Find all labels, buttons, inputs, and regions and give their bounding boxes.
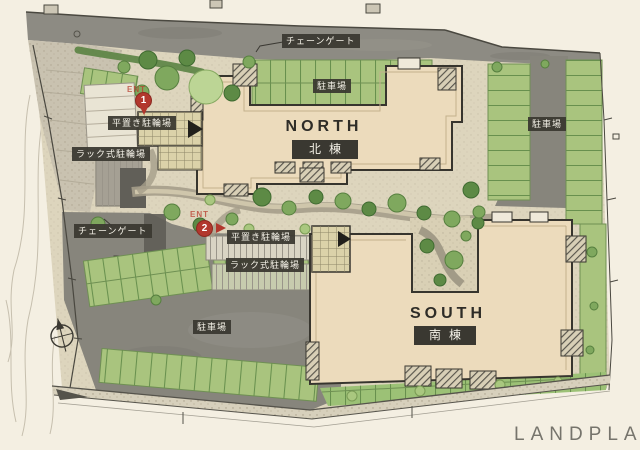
plan-caption: LANDPLAN (514, 424, 640, 446)
marker-1-number: 1 (141, 95, 147, 106)
south-building-name: SOUTH (400, 305, 496, 323)
marker-1: 1 (135, 92, 152, 109)
label-chain-gate-top: チェーンゲート (282, 34, 360, 48)
label-bicycle-rack-top: ラック式駐輪場 (72, 147, 150, 161)
marker-2: 2 (196, 220, 213, 237)
north-building-name: NORTH (276, 118, 372, 136)
north-building-name-jp: 北棟 (292, 140, 358, 159)
label-bicycle-rack-center: ラック式駐輪場 (226, 258, 304, 272)
landplan-canvas: チェーンゲート 駐車場 駐車場 平置き駐輪場 ラック式駐輪場 チェーンゲート 平… (0, 0, 640, 450)
label-chain-gate-left: チェーンゲート (74, 224, 152, 238)
south-entrance-plaza (312, 226, 351, 272)
label-bicycle-flat-center: 平置き駐輪場 (227, 230, 295, 244)
label-bicycle-flat-top: 平置き駐輪場 (108, 116, 176, 130)
label-parking-top: 駐車場 (313, 79, 351, 93)
entrance-note-2: ENT (190, 210, 209, 219)
label-parking-bottom: 駐車場 (193, 320, 231, 334)
bicycle-parking-rack-top-area (96, 160, 146, 208)
label-parking-right: 駐車場 (528, 117, 566, 131)
south-building-name-jp: 南棟 (414, 326, 476, 345)
marker-2-arrow-icon (216, 223, 226, 233)
marker-2-number: 2 (202, 223, 208, 234)
